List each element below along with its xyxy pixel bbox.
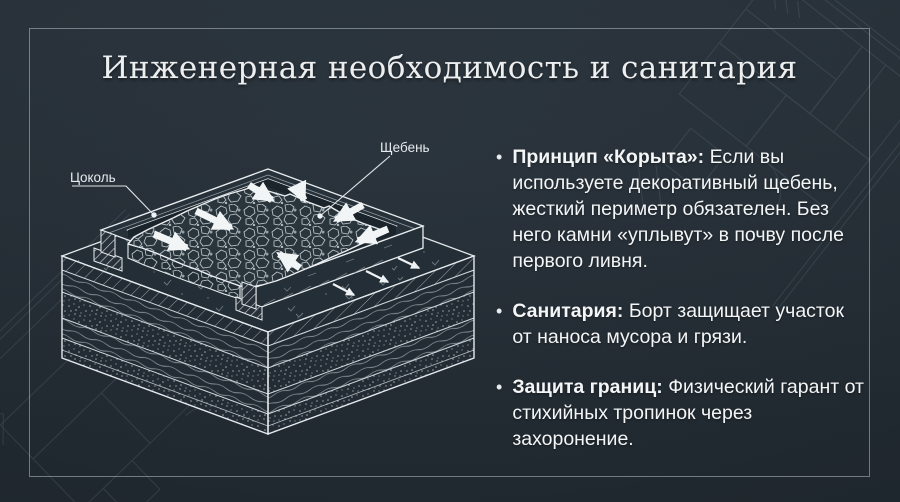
diagram-label-gravel: Щебень <box>380 140 430 155</box>
bullet-marker: • <box>496 374 502 452</box>
list-item: • Защита границ: Физический гарант от ст… <box>496 374 868 452</box>
bullet-lead: Санитария: <box>512 300 623 322</box>
list-item: • Принцип «Корыта»: Если вы используете … <box>496 144 868 274</box>
page-title: Инженерная необходимость и санитария <box>29 50 870 86</box>
list-item: • Санитария: Борт защищает участок от на… <box>496 298 868 350</box>
slide-canvas: Инженерная необходимость и санитария <box>0 0 900 502</box>
bullet-text: Защита границ: Физический гарант от стих… <box>512 374 868 452</box>
bullet-text: Принцип «Корыта»: Если вы используете де… <box>512 144 868 274</box>
bullet-text: Санитария: Борт защищает участок от нано… <box>512 298 868 350</box>
diagram-label-plinth: Цоколь <box>70 170 116 185</box>
foundation-diagram: Цоколь Щебень <box>46 138 478 478</box>
bullet-marker: • <box>496 144 502 274</box>
leader-dot-plinth <box>151 212 156 217</box>
bullet-lead: Принцип «Корыта»: <box>512 146 704 168</box>
bullet-list: • Принцип «Корыта»: Если вы используете … <box>496 144 868 476</box>
bullet-lead: Защита границ: <box>512 376 662 398</box>
leader-dot-gravel <box>317 213 322 218</box>
bullet-marker: • <box>496 298 502 350</box>
